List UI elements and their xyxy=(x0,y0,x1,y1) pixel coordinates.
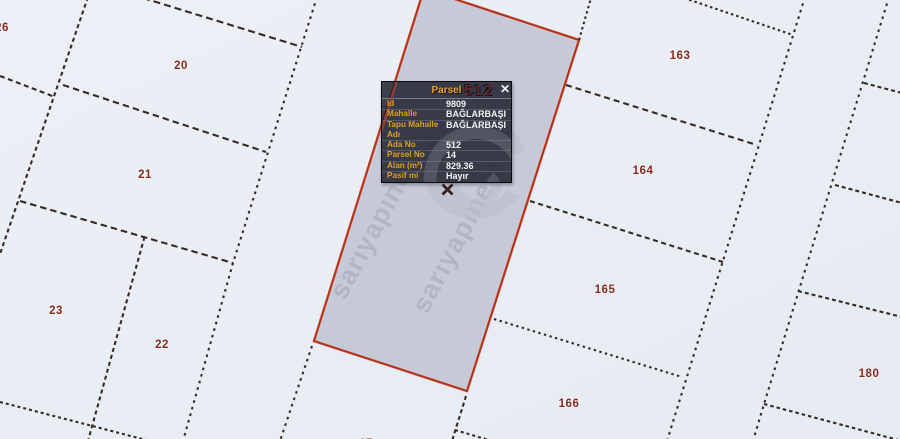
svg-text:26: 26 xyxy=(0,22,9,34)
svg-text:23: 23 xyxy=(49,305,63,317)
svg-text:165: 165 xyxy=(595,284,616,296)
svg-text:166: 166 xyxy=(559,398,580,410)
svg-text:20: 20 xyxy=(174,60,188,72)
svg-text:164: 164 xyxy=(633,165,654,177)
svg-text:163: 163 xyxy=(670,50,691,62)
svg-text:21: 21 xyxy=(138,169,152,181)
svg-text:22: 22 xyxy=(155,339,169,351)
svg-text:180: 180 xyxy=(859,368,880,380)
